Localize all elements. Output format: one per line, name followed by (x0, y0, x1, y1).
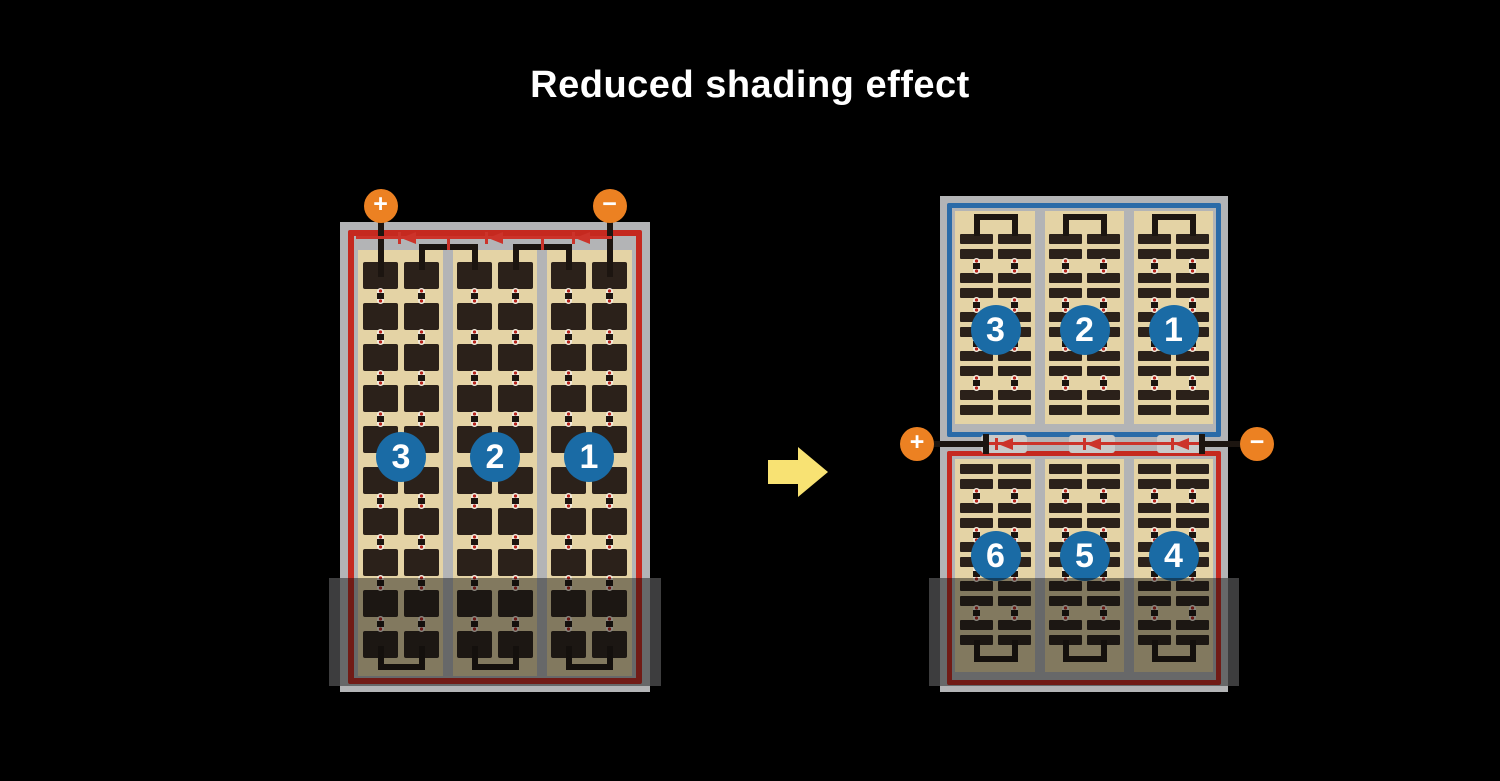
cell-interconnect-marker (565, 288, 572, 304)
cell-interconnect-marker (377, 411, 384, 427)
cell-interconnect-marker (418, 329, 425, 345)
shade-overlay (340, 578, 650, 686)
cell-interconnect-marker (606, 411, 613, 427)
half-cut-cell (960, 390, 993, 400)
negative-terminal: − (593, 189, 627, 223)
solar-cell (498, 508, 533, 535)
half-cut-cell (1049, 273, 1082, 283)
diagram-canvas: Reduced shading effect 321+− 321 654 +− (0, 0, 1500, 781)
cell-interconnect-marker (1100, 258, 1107, 274)
diode-line-tap (541, 238, 544, 250)
solar-cell (592, 549, 627, 576)
solar-cell (404, 344, 439, 371)
half-cut-cell (1049, 503, 1082, 513)
cell-interconnect-marker (377, 370, 384, 386)
cell-interconnect-marker (606, 370, 613, 386)
left-module: 321+− (340, 222, 650, 692)
busbar-wire (1012, 214, 1018, 236)
cell-interconnect-marker (377, 534, 384, 550)
half-cut-cell (1049, 464, 1082, 474)
half-cut-cell (998, 390, 1031, 400)
solar-cell (404, 385, 439, 412)
cell-interconnect-marker (973, 258, 980, 274)
half-cut-cell (1138, 273, 1171, 283)
solar-cell (363, 303, 398, 330)
busbar-wire (974, 214, 980, 236)
busbar-wire (1190, 214, 1196, 236)
bypass-diode-icon (1086, 438, 1101, 450)
half-cut-cell (1176, 405, 1209, 415)
half-cut-cell (1087, 464, 1120, 474)
cell-interconnect-marker (471, 370, 478, 386)
solar-cell (551, 303, 586, 330)
shade-overlay-extension (929, 578, 940, 686)
string-number-badge: 1 (564, 432, 614, 482)
cell-interconnect-marker (1100, 375, 1107, 391)
solar-cell (592, 508, 627, 535)
diagram-title: Reduced shading effect (0, 64, 1500, 107)
right-module-top-half: 321 (940, 196, 1228, 444)
half-cut-cell (1087, 390, 1120, 400)
cell-interconnect-marker (1189, 258, 1196, 274)
half-cut-cell (1138, 390, 1171, 400)
solar-cell (457, 385, 492, 412)
half-cut-cell (1176, 503, 1209, 513)
half-cut-cell (1138, 405, 1171, 415)
string-number-badge: 3 (376, 432, 426, 482)
bypass-diode-icon (401, 232, 416, 244)
cell-interconnect-marker (471, 329, 478, 345)
half-cut-cell (998, 273, 1031, 283)
cell-interconnect-marker (1062, 488, 1069, 504)
cell-interconnect-marker (565, 411, 572, 427)
half-cut-cell (1176, 273, 1209, 283)
half-cut-cell (960, 273, 993, 283)
shade-overlay-extension (650, 578, 661, 686)
cell-interconnect-marker (973, 488, 980, 504)
solar-cell (592, 385, 627, 412)
cell-interconnect-marker (1151, 375, 1158, 391)
solar-cell (404, 508, 439, 535)
half-cut-cell (1176, 464, 1209, 474)
cell-interconnect-marker (1189, 375, 1196, 391)
half-cut-cell (998, 464, 1031, 474)
half-cut-cell (998, 503, 1031, 513)
half-cut-cell (1138, 464, 1171, 474)
string-separator (1035, 211, 1045, 424)
solar-cell (498, 549, 533, 576)
cell-interconnect-marker (565, 534, 572, 550)
transform-arrow-icon (768, 447, 828, 497)
cell-interconnect-marker (377, 493, 384, 509)
solar-cell (404, 549, 439, 576)
cell-interconnect-marker (1100, 488, 1107, 504)
half-cut-cell (1087, 503, 1120, 513)
solar-cell (498, 344, 533, 371)
cell-interconnect-marker (418, 534, 425, 550)
string-number-badge: 4 (1149, 531, 1199, 581)
solar-cell (592, 303, 627, 330)
cell-interconnect-marker (1011, 488, 1018, 504)
negative-terminal: − (1240, 427, 1274, 461)
bypass-diode-icon (998, 438, 1013, 450)
solar-cell (363, 549, 398, 576)
cell-interconnect-marker (1189, 488, 1196, 504)
solar-cell (457, 508, 492, 535)
cell-interconnect-marker (512, 288, 519, 304)
half-cut-cell (998, 405, 1031, 415)
solar-cell (498, 385, 533, 412)
cell-interconnect-marker (1151, 258, 1158, 274)
string-number-badge: 1 (1149, 305, 1199, 355)
solar-cell (498, 303, 533, 330)
half-cut-cell (1176, 390, 1209, 400)
arrow-head (798, 447, 828, 497)
right-module-bottom-half: 654 (940, 444, 1228, 692)
cell-interconnect-marker (1151, 488, 1158, 504)
half-cut-cell (960, 464, 993, 474)
solar-cell (457, 549, 492, 576)
cell-interconnect-marker (1062, 375, 1069, 391)
cell-interconnect-marker (377, 329, 384, 345)
cell-interconnect-marker (512, 493, 519, 509)
cell-interconnect-marker (565, 370, 572, 386)
cell-interconnect-marker (606, 329, 613, 345)
half-cut-cell (1087, 405, 1120, 415)
string-number-badge: 2 (470, 432, 520, 482)
cell-interconnect-marker (1062, 258, 1069, 274)
string-number-badge: 2 (1060, 305, 1110, 355)
cell-interconnect-marker (512, 329, 519, 345)
arrow-shaft (768, 460, 798, 484)
cell-interconnect-marker (471, 288, 478, 304)
string-separator (1124, 211, 1134, 424)
busbar-wire (1101, 214, 1107, 236)
solar-cell (363, 508, 398, 535)
diode-line-tap (447, 238, 450, 250)
half-cut-cell (1138, 503, 1171, 513)
shade-overlay-extension (1228, 578, 1239, 686)
cell-interconnect-marker (471, 534, 478, 550)
solar-cell (457, 344, 492, 371)
bypass-diode-icon (1174, 438, 1189, 450)
cell-interconnect-marker (418, 411, 425, 427)
solar-cell (457, 303, 492, 330)
solar-cell (551, 385, 586, 412)
solar-cell (363, 385, 398, 412)
cell-interconnect-marker (418, 493, 425, 509)
cell-interconnect-marker (606, 493, 613, 509)
solar-cell (592, 344, 627, 371)
shade-overlay (940, 578, 1228, 686)
half-cut-cell (960, 503, 993, 513)
solar-cell (551, 508, 586, 535)
half-cut-cell (960, 405, 993, 415)
string-number-badge: 6 (971, 531, 1021, 581)
half-cut-cell (1087, 273, 1120, 283)
solar-cell (551, 549, 586, 576)
bypass-diode-icon (488, 232, 503, 244)
cell-interconnect-marker (565, 493, 572, 509)
string-number-badge: 3 (971, 305, 1021, 355)
solar-cell (363, 344, 398, 371)
cell-interconnect-marker (418, 288, 425, 304)
cell-interconnect-marker (377, 288, 384, 304)
bypass-diode-icon (575, 232, 590, 244)
busbar-wire (1063, 214, 1069, 236)
cell-interconnect-marker (606, 534, 613, 550)
cell-interconnect-marker (512, 534, 519, 550)
cell-interconnect-marker (512, 411, 519, 427)
cell-interconnect-marker (512, 370, 519, 386)
shade-overlay-extension (329, 578, 340, 686)
cell-interconnect-marker (1011, 258, 1018, 274)
solar-cell (404, 303, 439, 330)
positive-terminal: + (364, 189, 398, 223)
string-number-badge: 5 (1060, 531, 1110, 581)
cell-interconnect-marker (471, 493, 478, 509)
busbar-wire (1152, 214, 1158, 236)
cell-interconnect-marker (606, 288, 613, 304)
cell-interconnect-marker (471, 411, 478, 427)
cell-interconnect-marker (418, 370, 425, 386)
cell-interconnect-marker (565, 329, 572, 345)
solar-cell (551, 344, 586, 371)
half-cut-cell (1049, 390, 1082, 400)
cell-interconnect-marker (973, 375, 980, 391)
half-cut-cell (1049, 405, 1082, 415)
positive-terminal: + (900, 427, 934, 461)
cell-interconnect-marker (1011, 375, 1018, 391)
